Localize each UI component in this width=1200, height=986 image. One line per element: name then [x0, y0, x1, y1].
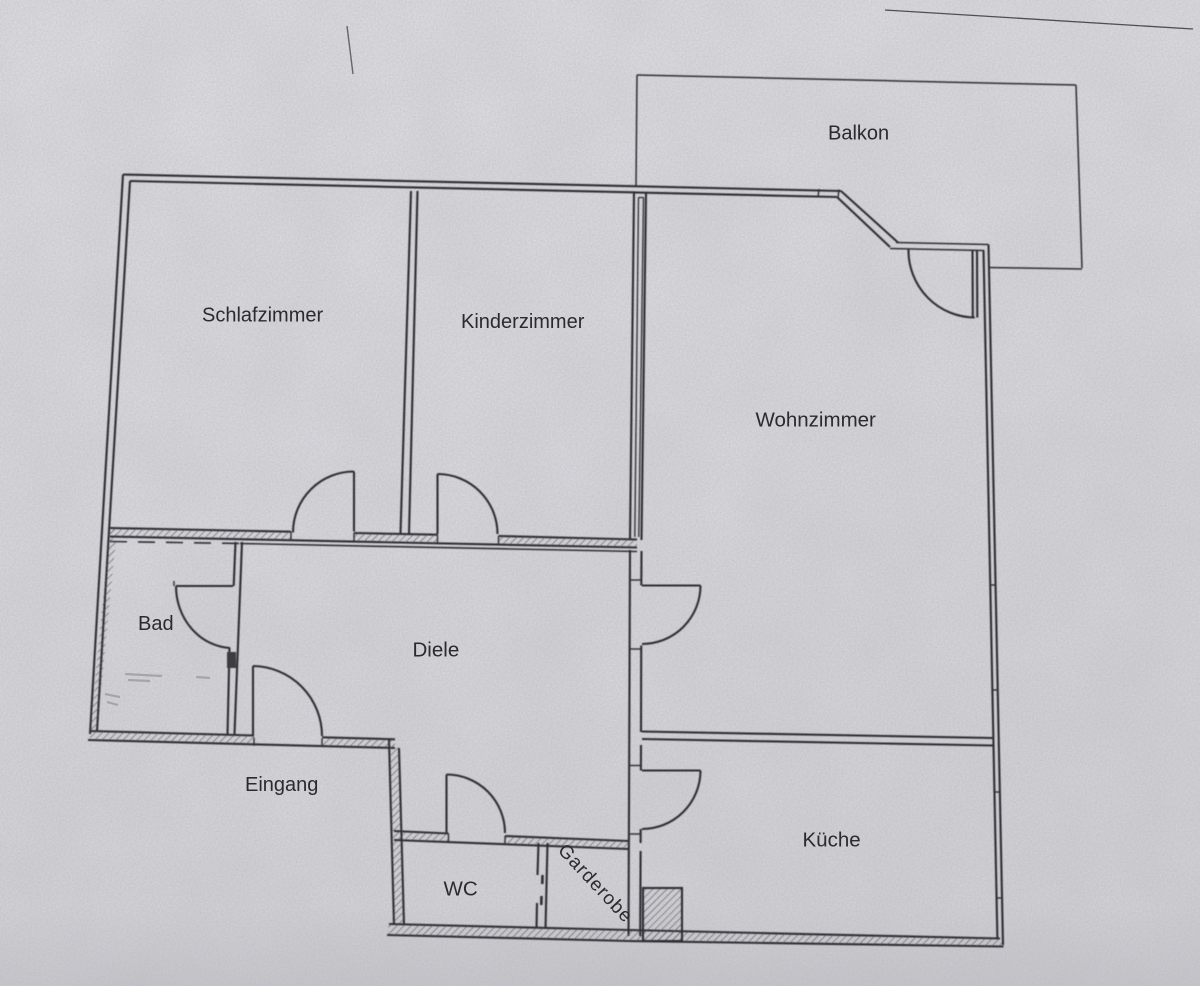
svg-text:Kinderzimmer: Kinderzimmer	[461, 311, 585, 333]
svg-text:WC: WC	[444, 878, 478, 901]
svg-text:Balkon: Balkon	[828, 123, 889, 145]
svg-text:Küche: Küche	[803, 829, 861, 852]
svg-text:Eingang: Eingang	[245, 774, 318, 796]
svg-text:Schlafzimmer: Schlafzimmer	[202, 305, 323, 327]
svg-text:Bad: Bad	[138, 613, 174, 635]
svg-text:Diele: Diele	[413, 639, 460, 662]
svg-text:Wohnzimmer: Wohnzimmer	[756, 409, 877, 432]
